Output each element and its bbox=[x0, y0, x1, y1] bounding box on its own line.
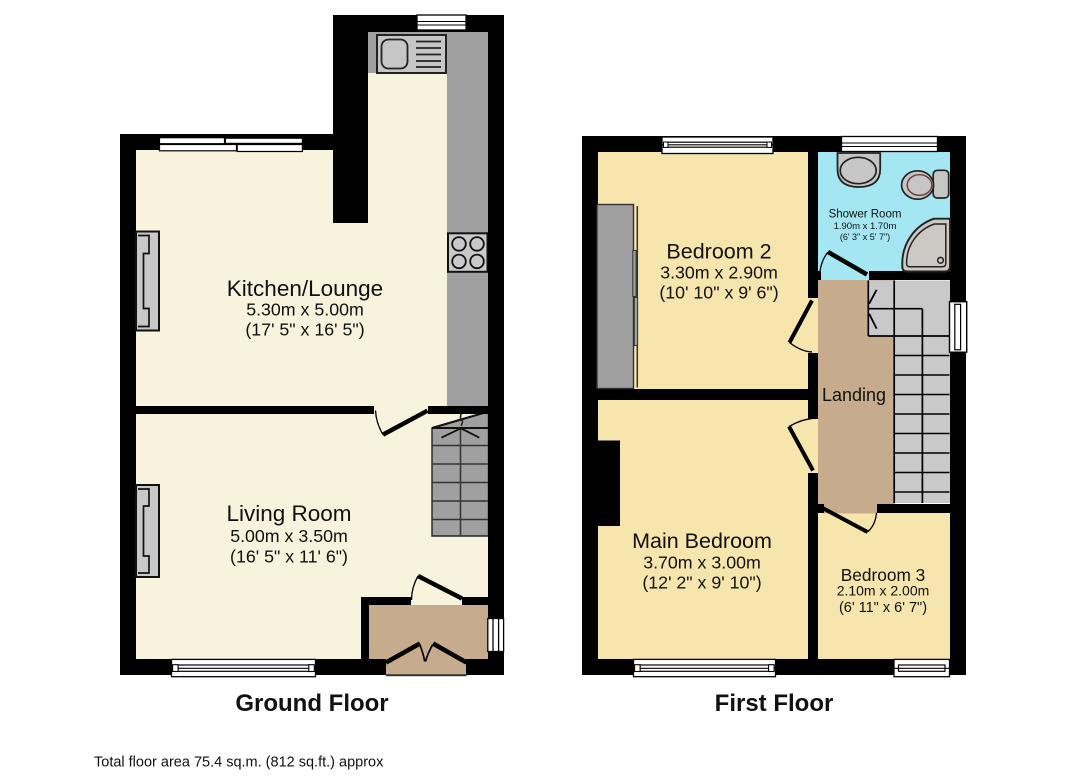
svg-text:Total floor area 75.4 sq.m. (8: Total floor area 75.4 sq.m. (812 sq.ft.)… bbox=[94, 755, 384, 771]
svg-text:5.30m x 5.00m: 5.30m x 5.00m bbox=[246, 300, 364, 320]
svg-text:(12' 2" x 9' 10"): (12' 2" x 9' 10") bbox=[642, 573, 761, 593]
svg-text:(6' 3" x 5' 7"): (6' 3" x 5' 7") bbox=[840, 232, 890, 242]
svg-text:Bedroom 2: Bedroom 2 bbox=[666, 239, 771, 263]
svg-text:Shower Room: Shower Room bbox=[829, 209, 902, 221]
svg-text:(16' 5" x 11' 6"): (16' 5" x 11' 6") bbox=[230, 547, 348, 567]
svg-text:2.10m x 2.00m: 2.10m x 2.00m bbox=[837, 583, 930, 599]
svg-text:1.90m x 1.70m: 1.90m x 1.70m bbox=[834, 221, 897, 232]
svg-text:(17' 5" x 16' 5"): (17' 5" x 16' 5") bbox=[245, 320, 364, 340]
svg-text:3.30m x 2.90m: 3.30m x 2.90m bbox=[660, 262, 778, 282]
svg-text:Kitchen/Lounge: Kitchen/Lounge bbox=[227, 276, 383, 301]
svg-text:Landing: Landing bbox=[822, 385, 886, 405]
svg-text:(10' 10" x 9' 6"): (10' 10" x 9' 6") bbox=[659, 283, 778, 303]
svg-text:Main Bedroom: Main Bedroom bbox=[632, 529, 772, 553]
svg-text:5.00m x 3.50m: 5.00m x 3.50m bbox=[230, 526, 348, 546]
svg-text:Ground Floor: Ground Floor bbox=[235, 690, 388, 717]
svg-text:First Floor: First Floor bbox=[715, 690, 834, 717]
svg-text:(6' 11" x 6' 7"): (6' 11" x 6' 7") bbox=[839, 600, 927, 616]
svg-text:Living Room: Living Room bbox=[226, 501, 351, 526]
svg-text:3.70m x 3.00m: 3.70m x 3.00m bbox=[643, 553, 761, 573]
